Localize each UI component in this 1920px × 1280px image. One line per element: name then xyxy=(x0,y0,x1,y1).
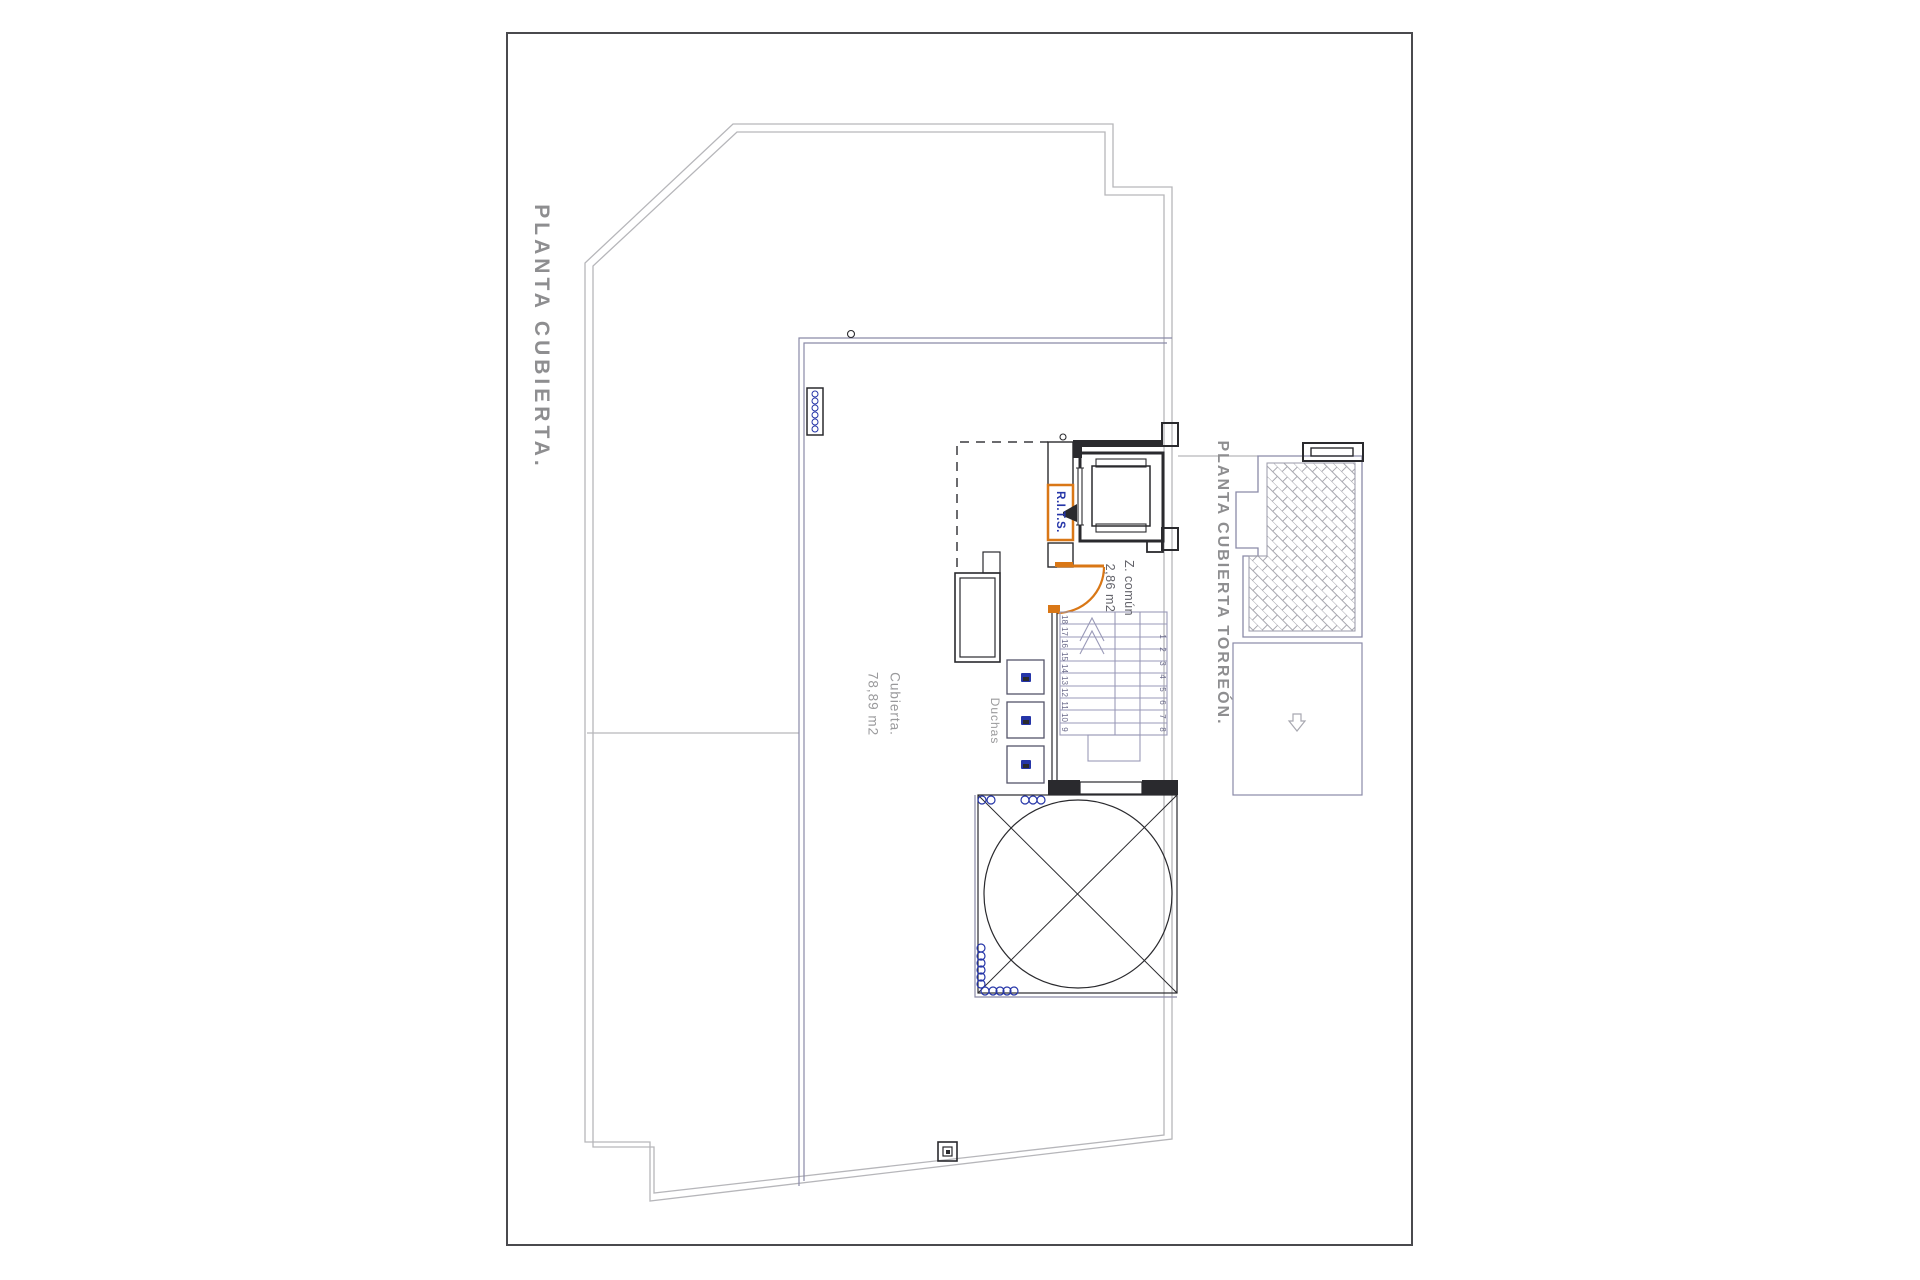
stair-number: 7 xyxy=(1157,710,1168,723)
common-zone-size: 2,86 m2 xyxy=(1100,560,1119,616)
sheet-side-title: PLANTA CUBIERTA. xyxy=(529,204,553,469)
stair-numbers-left: 1817161514131211109 xyxy=(1058,614,1071,735)
stair-number: 11 xyxy=(1059,699,1070,712)
stair-number: 1 xyxy=(1157,630,1168,643)
roof-area-label: Cubierta. 78,89 m2 xyxy=(862,672,905,736)
showers-label: Duchas xyxy=(988,698,1002,745)
common-zone-label: Z. común 2,86 m2 xyxy=(1100,560,1138,616)
stair-number: 14 xyxy=(1059,662,1070,675)
floor-plan-svg xyxy=(0,0,1920,1280)
stair-number: 8 xyxy=(1157,723,1168,736)
stair-number: 3 xyxy=(1157,657,1168,670)
common-zone-name: Z. común xyxy=(1119,560,1138,616)
stair-number: 2 xyxy=(1157,643,1168,656)
telecom-riser-label: R.I.T.S. xyxy=(1054,491,1066,533)
stair-number: 15 xyxy=(1059,650,1070,663)
stair-number: 9 xyxy=(1059,723,1070,736)
roof-area-name: Cubierta. xyxy=(884,672,906,736)
stair-number: 16 xyxy=(1059,637,1070,650)
stair-number: 10 xyxy=(1059,711,1070,724)
stair-number: 12 xyxy=(1059,686,1070,699)
stair-numbers-right: 12345678 xyxy=(1156,631,1169,735)
stair-number: 6 xyxy=(1157,696,1168,709)
drawing-sheet-stage: PLANTA CUBIERTA. PLANTA CUBIERTA TORREÓN… xyxy=(0,0,1920,1280)
roof-area-size: 78,89 m2 xyxy=(862,672,884,736)
stair-number: 4 xyxy=(1157,670,1168,683)
torreon-title: PLANTA CUBIERTA TORREÓN. xyxy=(1213,440,1231,725)
stair-number: 5 xyxy=(1157,683,1168,696)
showers xyxy=(1007,660,1044,783)
